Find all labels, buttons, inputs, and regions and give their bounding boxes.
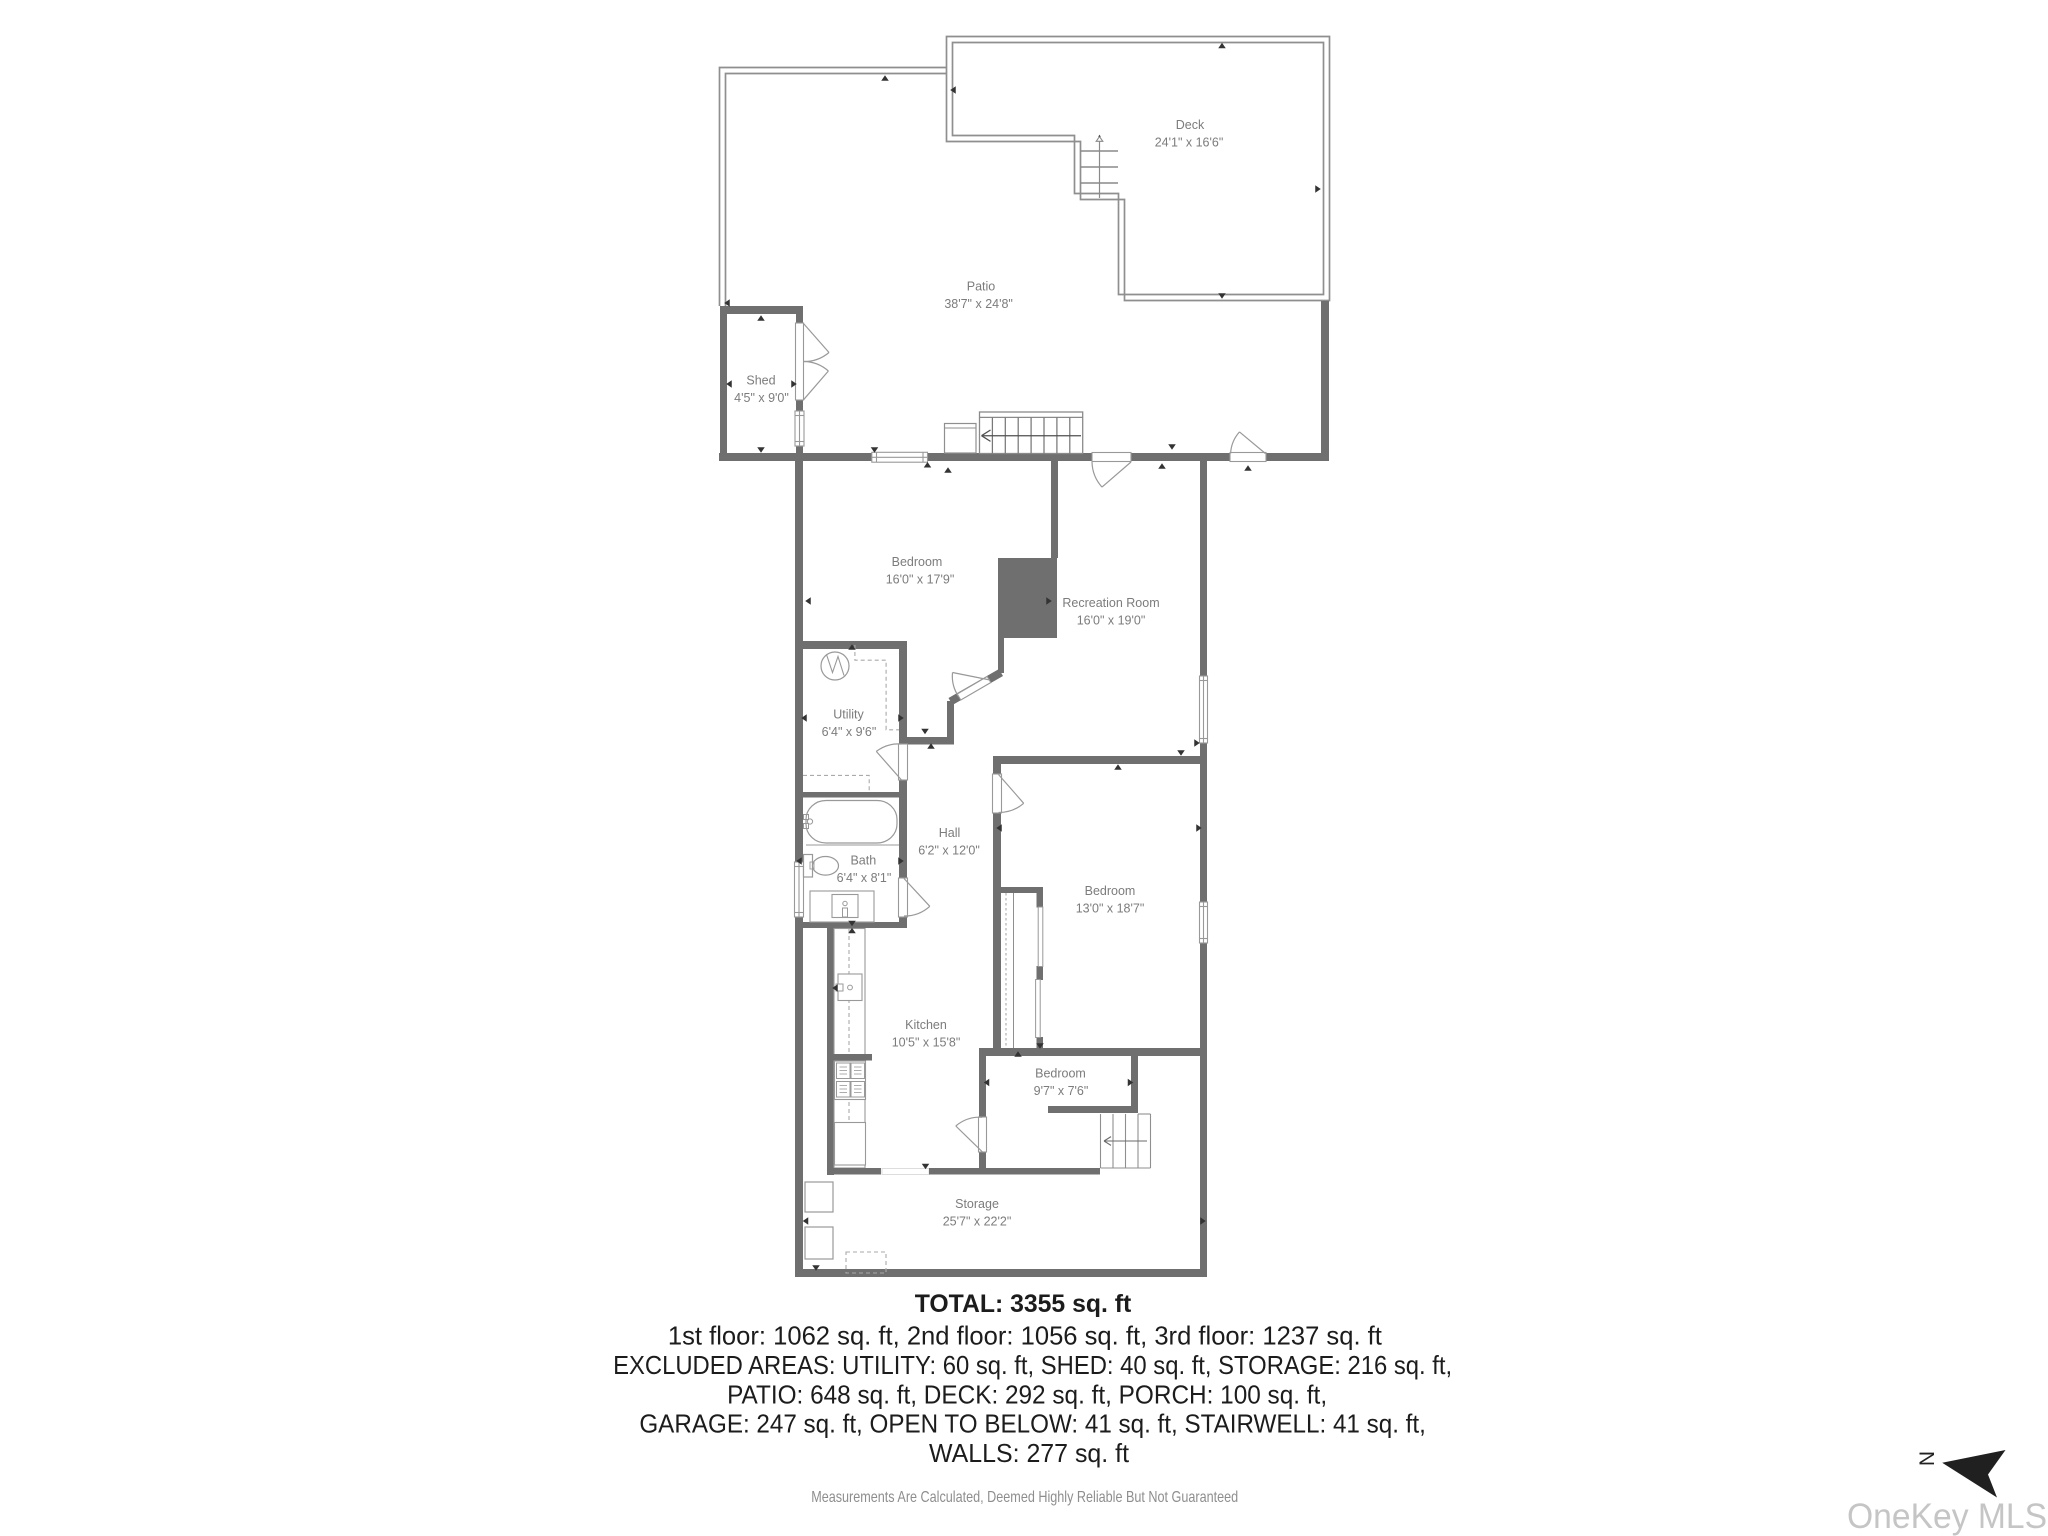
svg-text:Recreation Room: Recreation Room (1062, 596, 1159, 610)
svg-text:GARAGE: 247 sq. ft, OPEN TO BE: GARAGE: 247 sq. ft, OPEN TO BELOW: 41 sq… (639, 1409, 1426, 1439)
svg-text:16'0" x 19'0": 16'0" x 19'0" (1077, 614, 1146, 628)
svg-text:9'7" x 7'6": 9'7" x 7'6" (1034, 1084, 1089, 1098)
svg-text:25'7" x 22'2": 25'7" x 22'2" (943, 1215, 1012, 1229)
svg-text:TOTAL: 3355 sq. ft: TOTAL: 3355 sq. ft (915, 1290, 1132, 1318)
svg-text:Storage: Storage (955, 1197, 999, 1211)
svg-text:N: N (1916, 1451, 1939, 1466)
svg-text:16'0" x 17'9": 16'0" x 17'9" (886, 573, 955, 587)
svg-text:6'4" x 8'1": 6'4" x 8'1" (837, 871, 892, 885)
svg-text:13'0" x 18'7": 13'0" x 18'7" (1076, 902, 1145, 916)
svg-text:Patio: Patio (967, 280, 996, 294)
svg-text:Measurements Are Calculated, D: Measurements Are Calculated, Deemed High… (811, 1489, 1238, 1506)
svg-text:6'4" x 9'6": 6'4" x 9'6" (822, 725, 877, 739)
svg-text:24'1" x 16'6": 24'1" x 16'6" (1155, 136, 1224, 150)
svg-text:4'5" x 9'0": 4'5" x 9'0" (734, 391, 789, 405)
svg-text:Utility: Utility (833, 708, 864, 722)
svg-text:Kitchen: Kitchen (905, 1018, 947, 1032)
svg-text:10'5" x 15'8": 10'5" x 15'8" (892, 1036, 961, 1050)
svg-text:Shed: Shed (746, 374, 775, 388)
svg-text:1st floor: 1062 sq. ft, 2nd fl: 1st floor: 1062 sq. ft, 2nd floor: 1056 … (668, 1321, 1383, 1351)
svg-text:OneKey MLS: OneKey MLS (1847, 1497, 2047, 1536)
svg-text:6'2" x 12'0": 6'2" x 12'0" (918, 844, 980, 858)
svg-text:Deck: Deck (1176, 118, 1205, 132)
svg-text:Bedroom: Bedroom (892, 555, 943, 569)
svg-text:EXCLUDED AREAS: UTILITY: 60 sq: EXCLUDED AREAS: UTILITY: 60 sq. ft, SHED… (613, 1350, 1452, 1380)
svg-text:PATIO: 648 sq. ft, DECK: 292 s: PATIO: 648 sq. ft, DECK: 292 sq. ft, POR… (727, 1379, 1327, 1409)
svg-text:Bedroom: Bedroom (1085, 884, 1136, 898)
svg-text:38'7" x 24'8": 38'7" x 24'8" (944, 297, 1013, 311)
svg-text:WALLS: 277 sq. ft: WALLS: 277 sq. ft (929, 1438, 1130, 1468)
svg-text:Hall: Hall (939, 826, 961, 840)
svg-text:Bedroom: Bedroom (1035, 1067, 1086, 1081)
svg-text:Bath: Bath (850, 854, 876, 868)
